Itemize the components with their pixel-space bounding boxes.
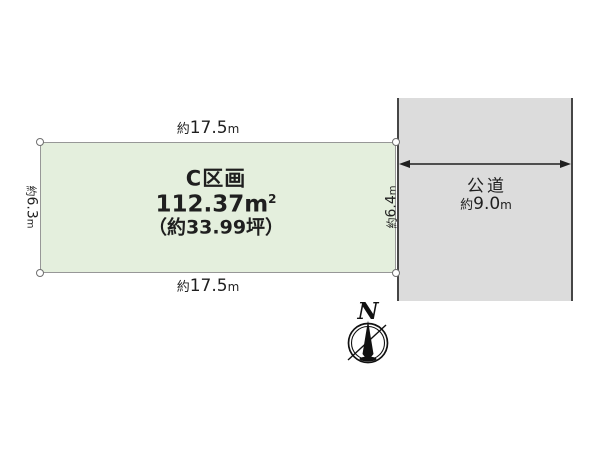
dim-prefix: 約 (386, 218, 399, 229)
plot-area-value: 112.37 (155, 191, 244, 217)
corner-marker-bottom-right (392, 269, 400, 277)
corner-marker-top-left (36, 138, 44, 146)
dim-unit: m (228, 122, 240, 136)
plot-area-superscript: 2 (268, 191, 276, 205)
road-label: 公道 (467, 172, 507, 197)
site-plan-diagram: C区画 112.37m2 （約33.99坪） 約17.5m 約17.5m 約6.… (0, 0, 600, 450)
plot-top-dimension: 約17.5m (177, 118, 240, 138)
road-width-arrow-icon (397, 156, 573, 172)
dim-unit: m (228, 280, 240, 294)
plot-left-dimension: 約6.3m (24, 185, 43, 228)
dim-unit: m (25, 219, 36, 229)
road-width-dimension: 約9.0m (460, 194, 512, 214)
dim-value: 6.3 (24, 196, 40, 218)
corner-marker-top-right (392, 138, 400, 146)
dim-value: 9.0 (473, 194, 500, 214)
dim-prefix: 約 (177, 280, 190, 295)
compass-rose-icon: N (341, 298, 395, 376)
dim-unit: m (388, 185, 399, 195)
dim-prefix: 約 (177, 122, 190, 137)
dim-prefix: 約 (25, 185, 38, 196)
north-indicator: N (341, 298, 395, 376)
dim-unit: m (500, 198, 512, 212)
dim-value: 17.5 (190, 118, 228, 138)
dim-value: 17.5 (190, 276, 228, 296)
plot-area-m2: 112.37m2 (148, 191, 284, 217)
plot-bottom-dimension: 約17.5m (177, 276, 240, 296)
plot-title: C区画 (148, 167, 284, 191)
plot-label: C区画 112.37m2 （約33.99坪） (148, 167, 284, 238)
plot-area-tsubo: （約33.99坪） (148, 217, 284, 238)
plot-area-unit: m (244, 191, 268, 217)
corner-marker-bottom-left (36, 269, 44, 277)
dim-prefix: 約 (460, 198, 473, 213)
plot-right-dimension: 約6.4m (381, 185, 400, 228)
dim-value: 6.4 (384, 195, 400, 217)
